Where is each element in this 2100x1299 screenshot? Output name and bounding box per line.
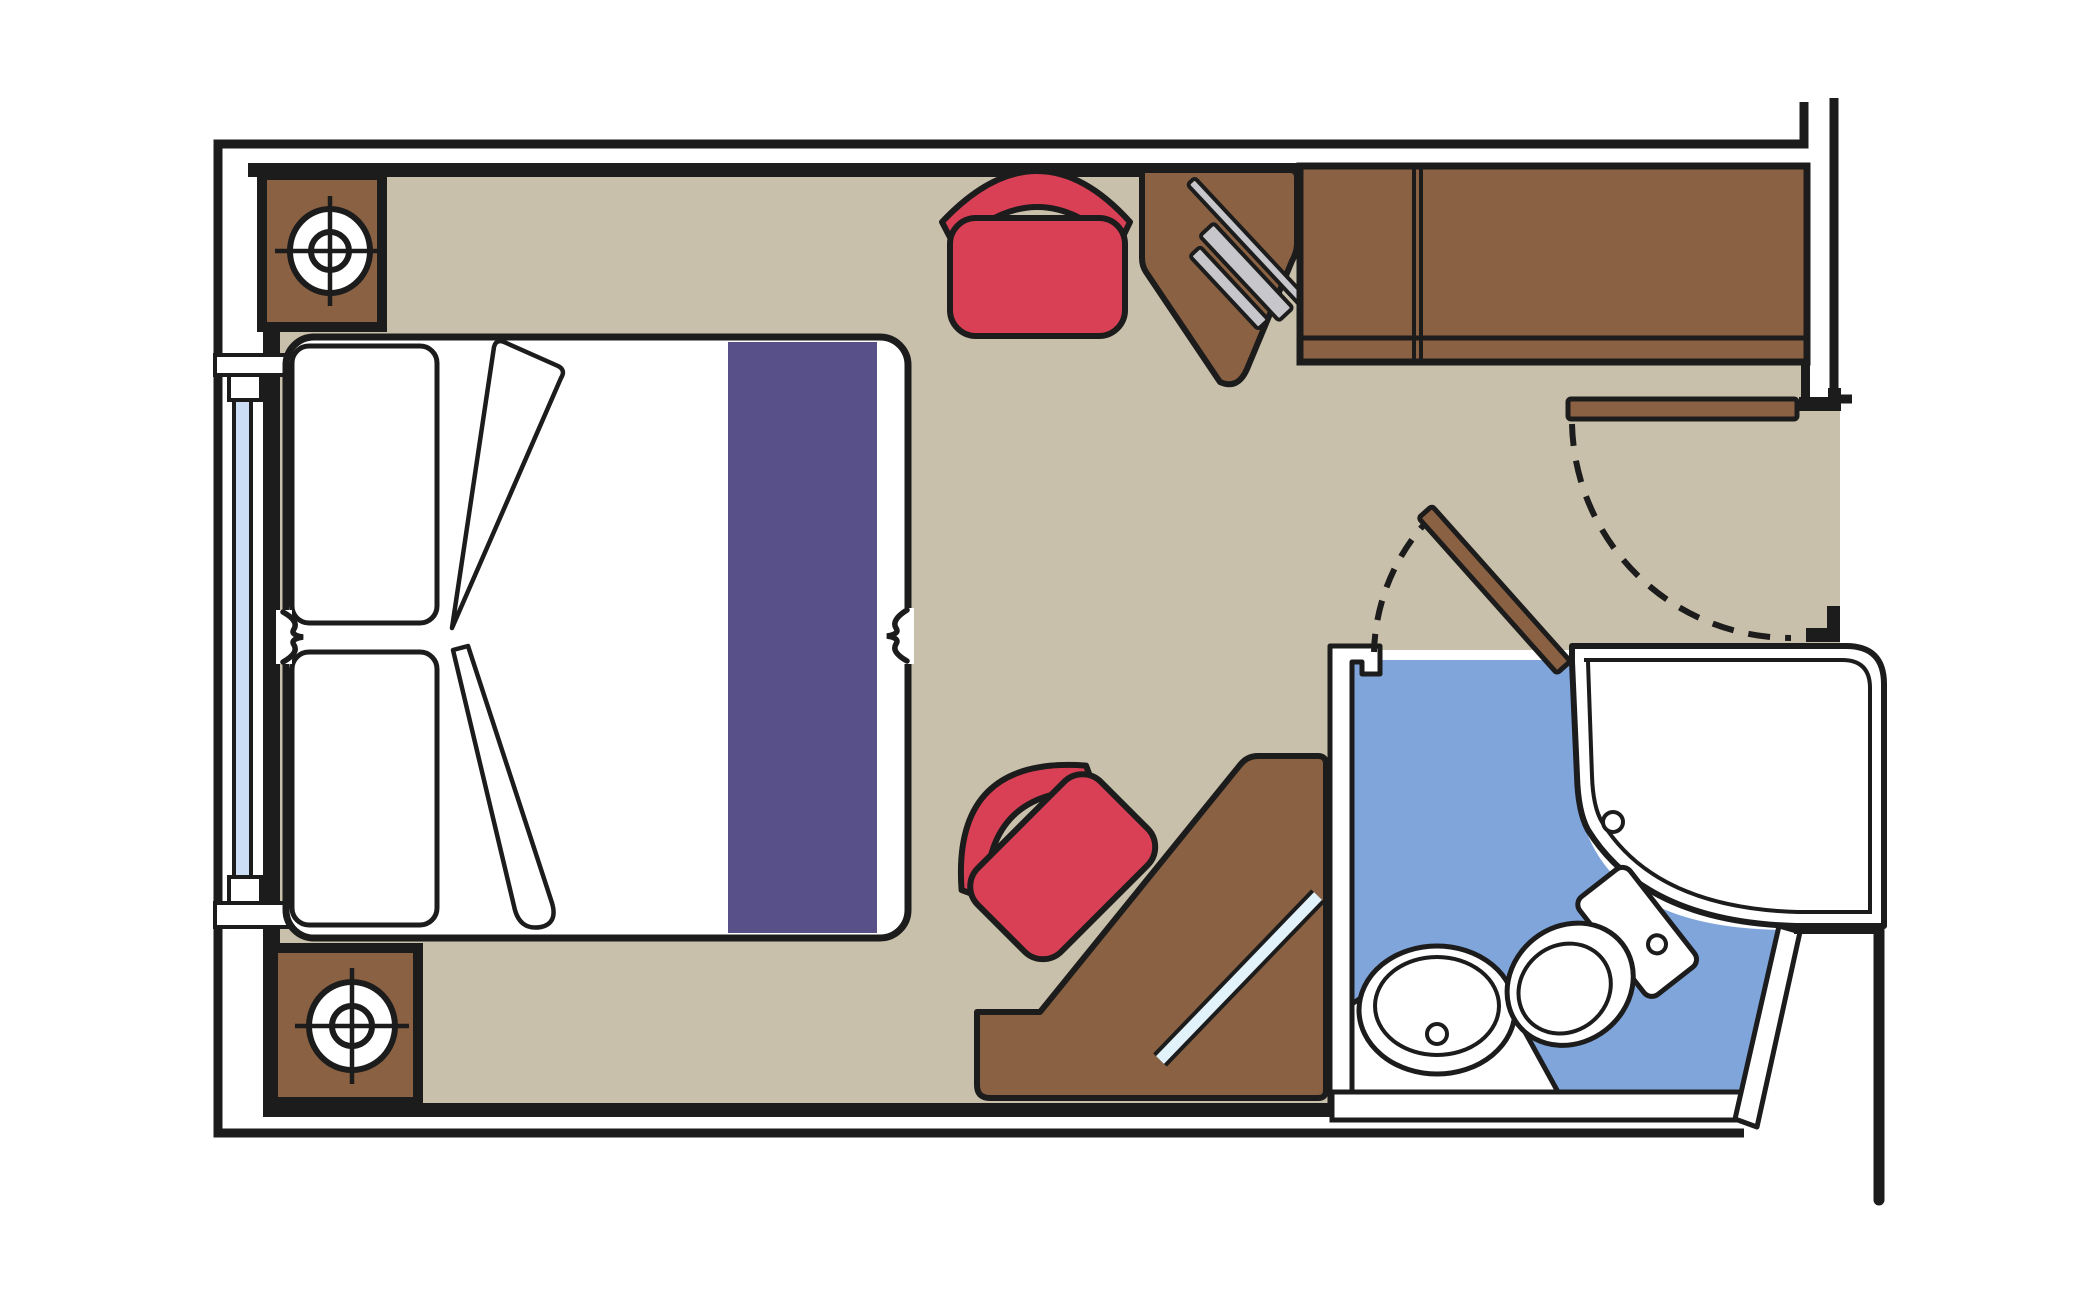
entry-door-panel (1568, 399, 1797, 419)
pillow-left-upper (292, 346, 437, 623)
window-frame-bottom-cap (229, 877, 261, 903)
window-glass (234, 400, 251, 877)
two-door-wardrobe (1300, 166, 1807, 362)
shower-drain-icon (1603, 812, 1623, 832)
nightstand-bottom-left (273, 948, 418, 1102)
bathroom-wall-bottom (1332, 1092, 1742, 1120)
stool-seat (950, 218, 1125, 336)
pillow-left-lower (292, 652, 437, 925)
corridor-wall-line (1834, 98, 1852, 399)
bed-runner-stripe (728, 342, 877, 933)
stool-top (942, 171, 1130, 336)
double-bed (276, 337, 914, 938)
cabin-floor-plan (0, 0, 2100, 1299)
wall-bottom (263, 1103, 1335, 1117)
nightstand-top-left (262, 175, 385, 327)
floor-plan-canvas (0, 0, 2100, 1299)
sink-drain-icon (1427, 1024, 1447, 1044)
window-frame-top-cap (229, 375, 261, 400)
